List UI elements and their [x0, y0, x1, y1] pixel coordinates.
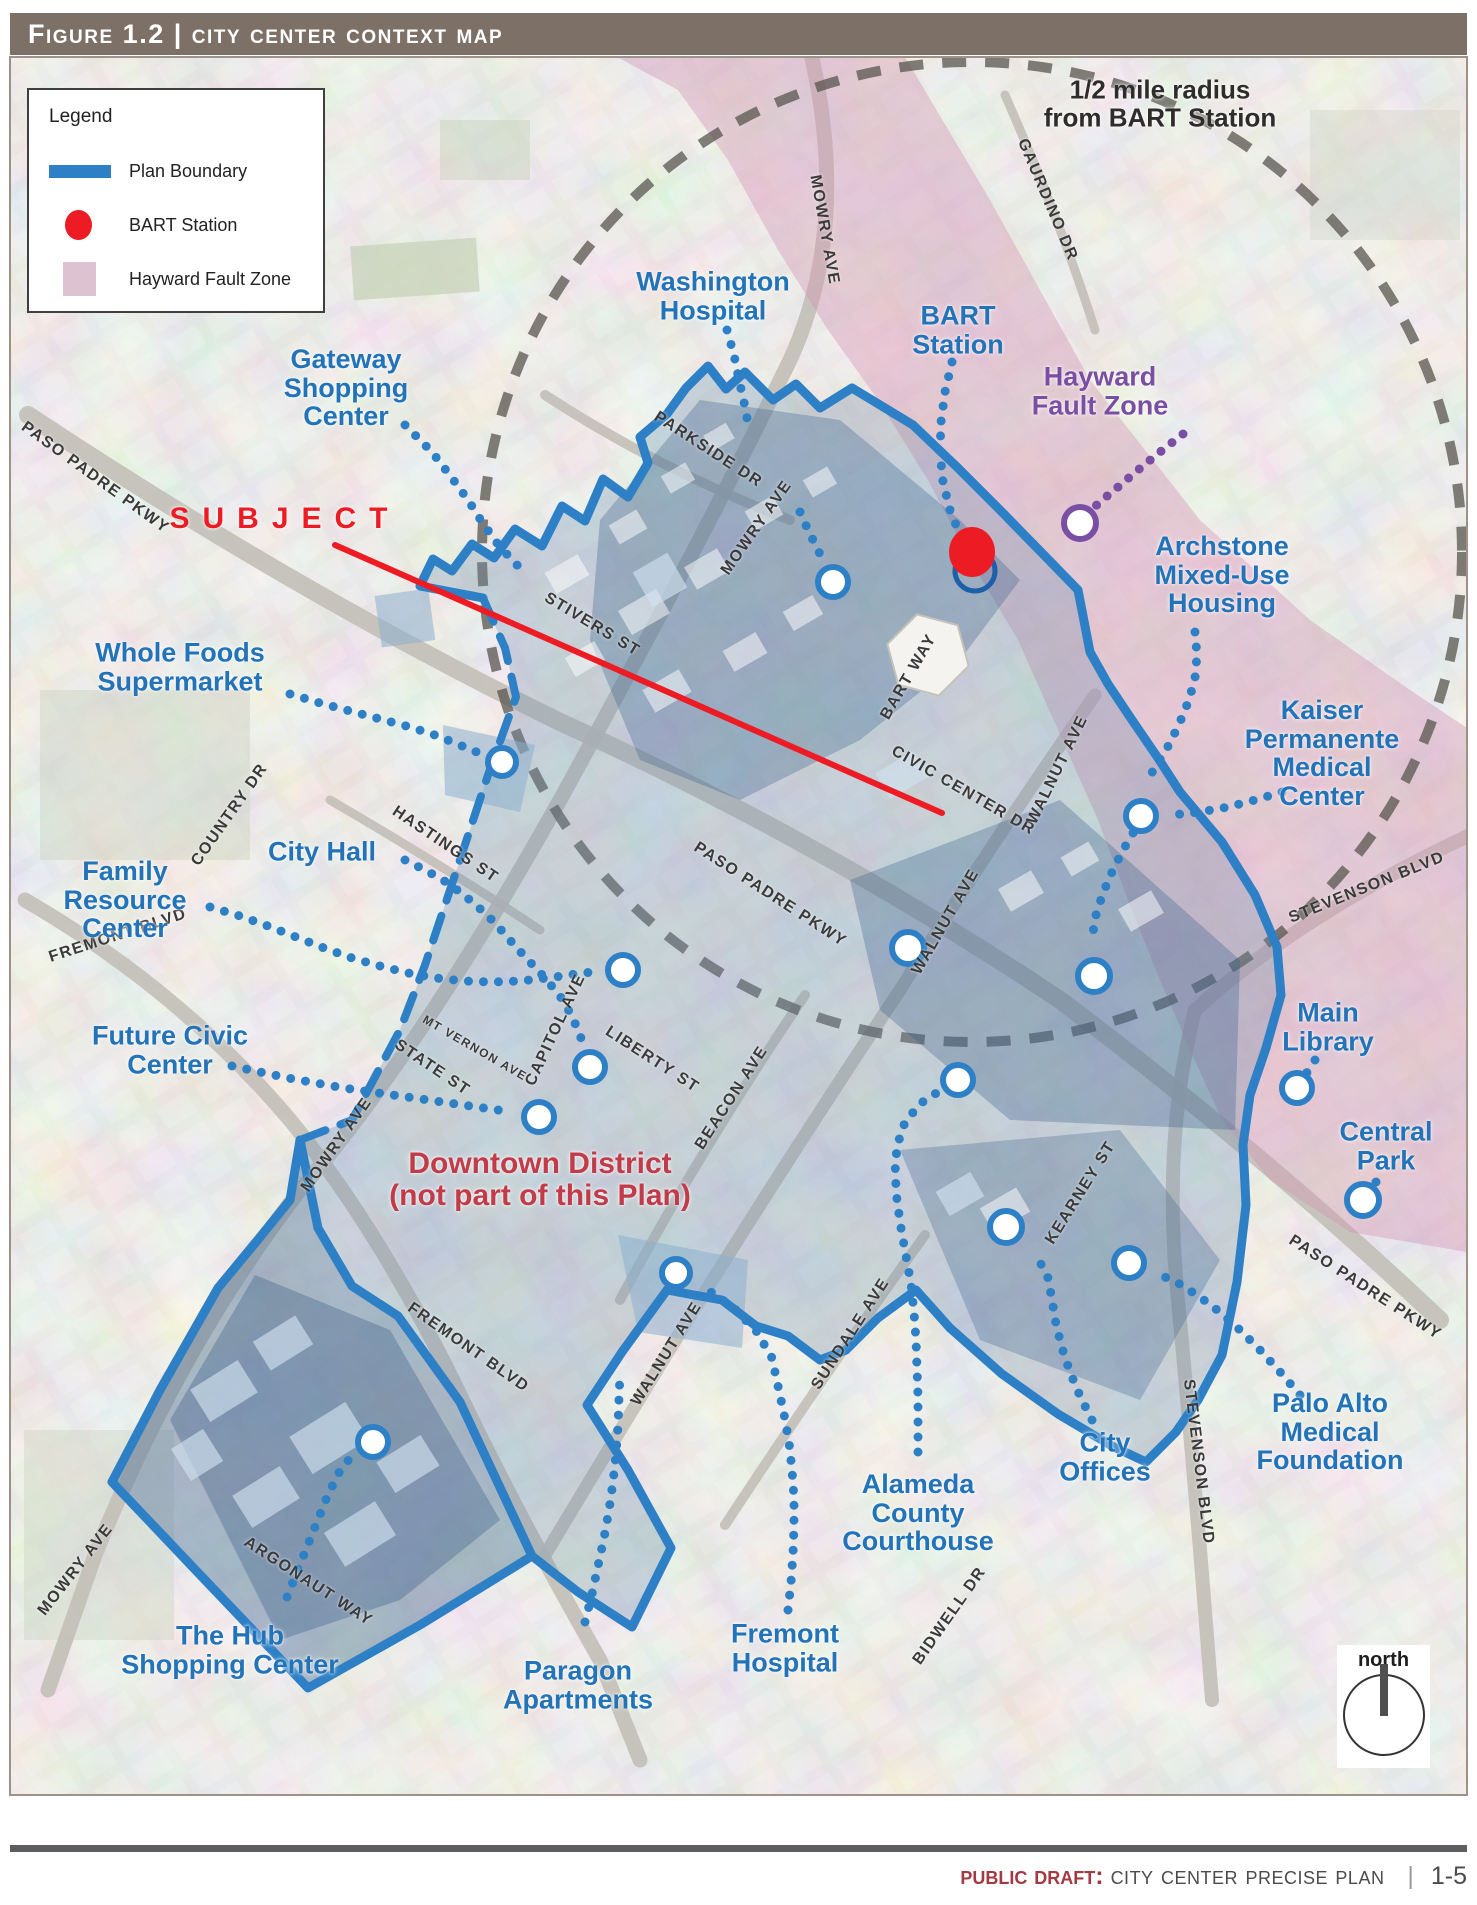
marker-hub	[358, 1427, 388, 1457]
legend-label: Plan Boundary	[129, 161, 247, 182]
north-circle	[1343, 1674, 1425, 1756]
marker-city-hall	[575, 1052, 605, 1082]
footer-draft-label: Public Draft:	[960, 1862, 1103, 1890]
footer-page-number: 1-5	[1431, 1862, 1467, 1890]
footer-doc-title: City Center Precise Plan	[1111, 1862, 1385, 1890]
footer-rule	[10, 1845, 1467, 1852]
marker-kaiser-2	[1078, 960, 1110, 992]
footer-separator: |	[1391, 1862, 1424, 1890]
legend-items: Plan BoundaryBART StationHayward Fault Z…	[49, 144, 323, 306]
legend-item-dot: BART Station	[49, 198, 323, 252]
legend-item-line: Plan Boundary	[49, 144, 323, 198]
footer: Public Draft: City Center Precise Plan |…	[960, 1862, 1467, 1891]
legend-label: BART Station	[129, 215, 237, 236]
legend-swatch-dot-icon	[65, 210, 92, 240]
marker-fremont-hospital	[662, 1259, 690, 1287]
legend-title: Legend	[49, 106, 323, 128]
bart-station-dot	[949, 527, 995, 577]
marker-civic	[818, 567, 848, 597]
marker-city-offices	[990, 1211, 1022, 1243]
marker-palo-alto-medical	[1114, 1248, 1144, 1278]
marker-family-resource	[608, 955, 638, 985]
marker-future-civic	[524, 1102, 554, 1132]
marker-block-south	[892, 932, 924, 964]
blue-patch-1	[375, 588, 436, 647]
marker-kaiser	[1126, 801, 1156, 831]
marker-main-library	[1282, 1073, 1312, 1103]
figure-title: Figure 1.2 | City Center Context Map	[10, 19, 503, 50]
legend-swatch-line-icon	[49, 165, 111, 178]
legend-label: Hayward Fault Zone	[129, 269, 291, 290]
legend-item-box: Hayward Fault Zone	[49, 252, 323, 306]
page: BLVDPASO PADRE PKWYMOWRY AVEGAURDINO DRP…	[0, 0, 1477, 1905]
marker-central-park	[1347, 1184, 1379, 1216]
marker-whole-foods	[488, 748, 516, 776]
legend-swatch-box-icon	[63, 262, 96, 296]
marker-alameda-courthouse	[943, 1065, 973, 1095]
figure-header: Figure 1.2 | City Center Context Map	[10, 13, 1467, 55]
north-arrow: north	[1337, 1645, 1430, 1768]
north-tick	[1380, 1664, 1388, 1716]
legend: Legend Plan BoundaryBART StationHayward …	[27, 88, 325, 313]
marker-hayward-fault	[1064, 507, 1096, 539]
